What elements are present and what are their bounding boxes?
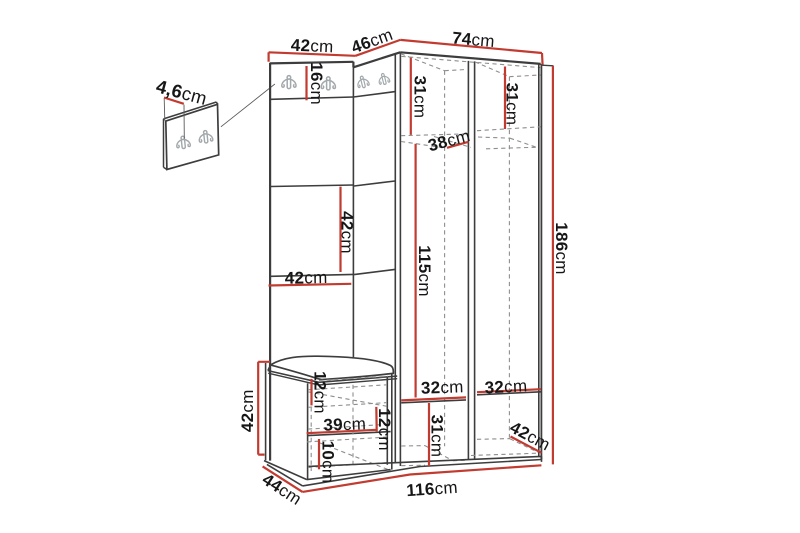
svg-text:12cm: 12cm: [375, 408, 394, 451]
svg-text:10cm: 10cm: [319, 441, 338, 484]
svg-text:74cm: 74cm: [451, 28, 495, 51]
svg-text:31cm: 31cm: [411, 76, 430, 119]
svg-text:32cm: 32cm: [421, 377, 464, 397]
svg-text:42cm: 42cm: [290, 36, 334, 57]
svg-text:115cm: 115cm: [415, 245, 434, 297]
svg-text:39cm: 39cm: [323, 414, 366, 434]
svg-text:12cm: 12cm: [311, 371, 330, 414]
svg-text:116cm: 116cm: [406, 478, 459, 501]
svg-text:31cm: 31cm: [428, 415, 447, 458]
svg-text:16cm: 16cm: [307, 62, 326, 105]
svg-text:186cm: 186cm: [552, 222, 571, 275]
svg-text:31cm: 31cm: [503, 83, 522, 126]
svg-text:32cm: 32cm: [484, 376, 528, 397]
svg-text:42cm: 42cm: [238, 389, 257, 432]
svg-text:42cm: 42cm: [285, 268, 328, 288]
svg-text:42cm: 42cm: [338, 211, 357, 254]
